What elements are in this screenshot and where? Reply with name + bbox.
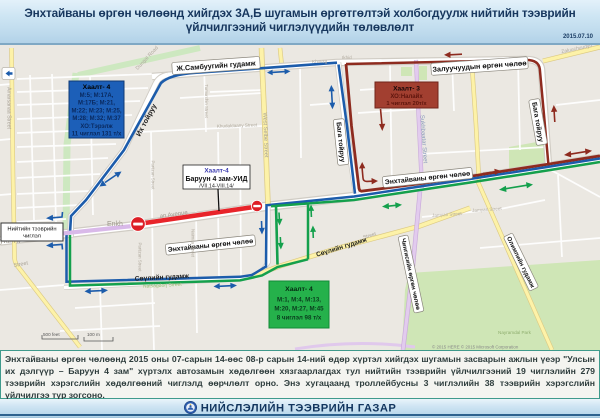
- svg-text:М:5; М:17А,: М:5; М:17А,: [80, 93, 114, 99]
- svg-text:11 чиглэл 131 т/х: 11 чиглэл 131 т/х: [72, 132, 122, 138]
- svg-text:Ikhid: Ikhid: [342, 55, 352, 60]
- svg-text:Хаалт- 3: Хаалт- 3: [393, 86, 420, 93]
- svg-text:100 m: 100 m: [87, 332, 100, 337]
- svg-text:Naimaa Street: Naimaa Street: [191, 229, 196, 258]
- svg-text:Баруун 4 зам-УИД: Баруун 4 зам-УИД: [185, 176, 247, 183]
- svg-text:500 feet: 500 feet: [43, 332, 60, 337]
- svg-text:Nayramdal Park: Nayramdal Park: [498, 330, 532, 335]
- svg-text:Хаалт-4: Хаалт-4: [204, 168, 229, 175]
- svg-text:Enkh: Enkh: [107, 221, 123, 228]
- svg-text:Tumurchin Street: Tumurchin Street: [204, 84, 209, 118]
- svg-text:Partizan Street: Partizan Street: [138, 242, 143, 272]
- svg-text:Хаалт- 4: Хаалт- 4: [83, 84, 111, 91]
- svg-text:8 чиглэл 98 т/х: 8 чиглэл 98 т/х: [277, 315, 322, 322]
- svg-text:М:22; М:23; М:25,: М:22; М:23; М:25,: [71, 108, 121, 114]
- svg-text:Хаалт- 4: Хаалт- 4: [285, 286, 313, 293]
- svg-text:Нийтийн тээврийн: Нийтийн тээврийн: [7, 226, 56, 233]
- svg-text:М:1, М:4, М:13,: М:1, М:4, М:13,: [277, 297, 321, 304]
- svg-text:/VII.14-VIII.14/: /VII.14-VIII.14/: [199, 184, 234, 190]
- svg-text:Amarsanaa Street: Amarsanaa Street: [6, 87, 12, 129]
- svg-text:чиглэл: чиглэл: [23, 234, 41, 240]
- svg-text:М:28; М:32; М:37: М:28; М:32; М:37: [72, 116, 121, 122]
- svg-text:Khuvsg: Khuvsg: [312, 59, 328, 64]
- svg-text:М:20, М:27, М:45: М:20, М:27, М:45: [274, 306, 324, 313]
- svg-text:ХО:Налайх: ХО:Налайх: [390, 93, 423, 100]
- svg-text:© 2015 HERE © 2015 Microsoft: © 2015 HERE © 2015 Microsoft Corporation: [432, 345, 519, 350]
- svg-text:Partizan Street: Partizan Street: [151, 160, 156, 190]
- svg-text:1 чиглэл 20т/х: 1 чиглэл 20т/х: [386, 101, 427, 107]
- svg-text:М:17Б; М:21,: М:17Б; М:21,: [78, 101, 115, 107]
- svg-text:ХО:Тэрэлж: ХО:Тэрэлж: [80, 124, 113, 130]
